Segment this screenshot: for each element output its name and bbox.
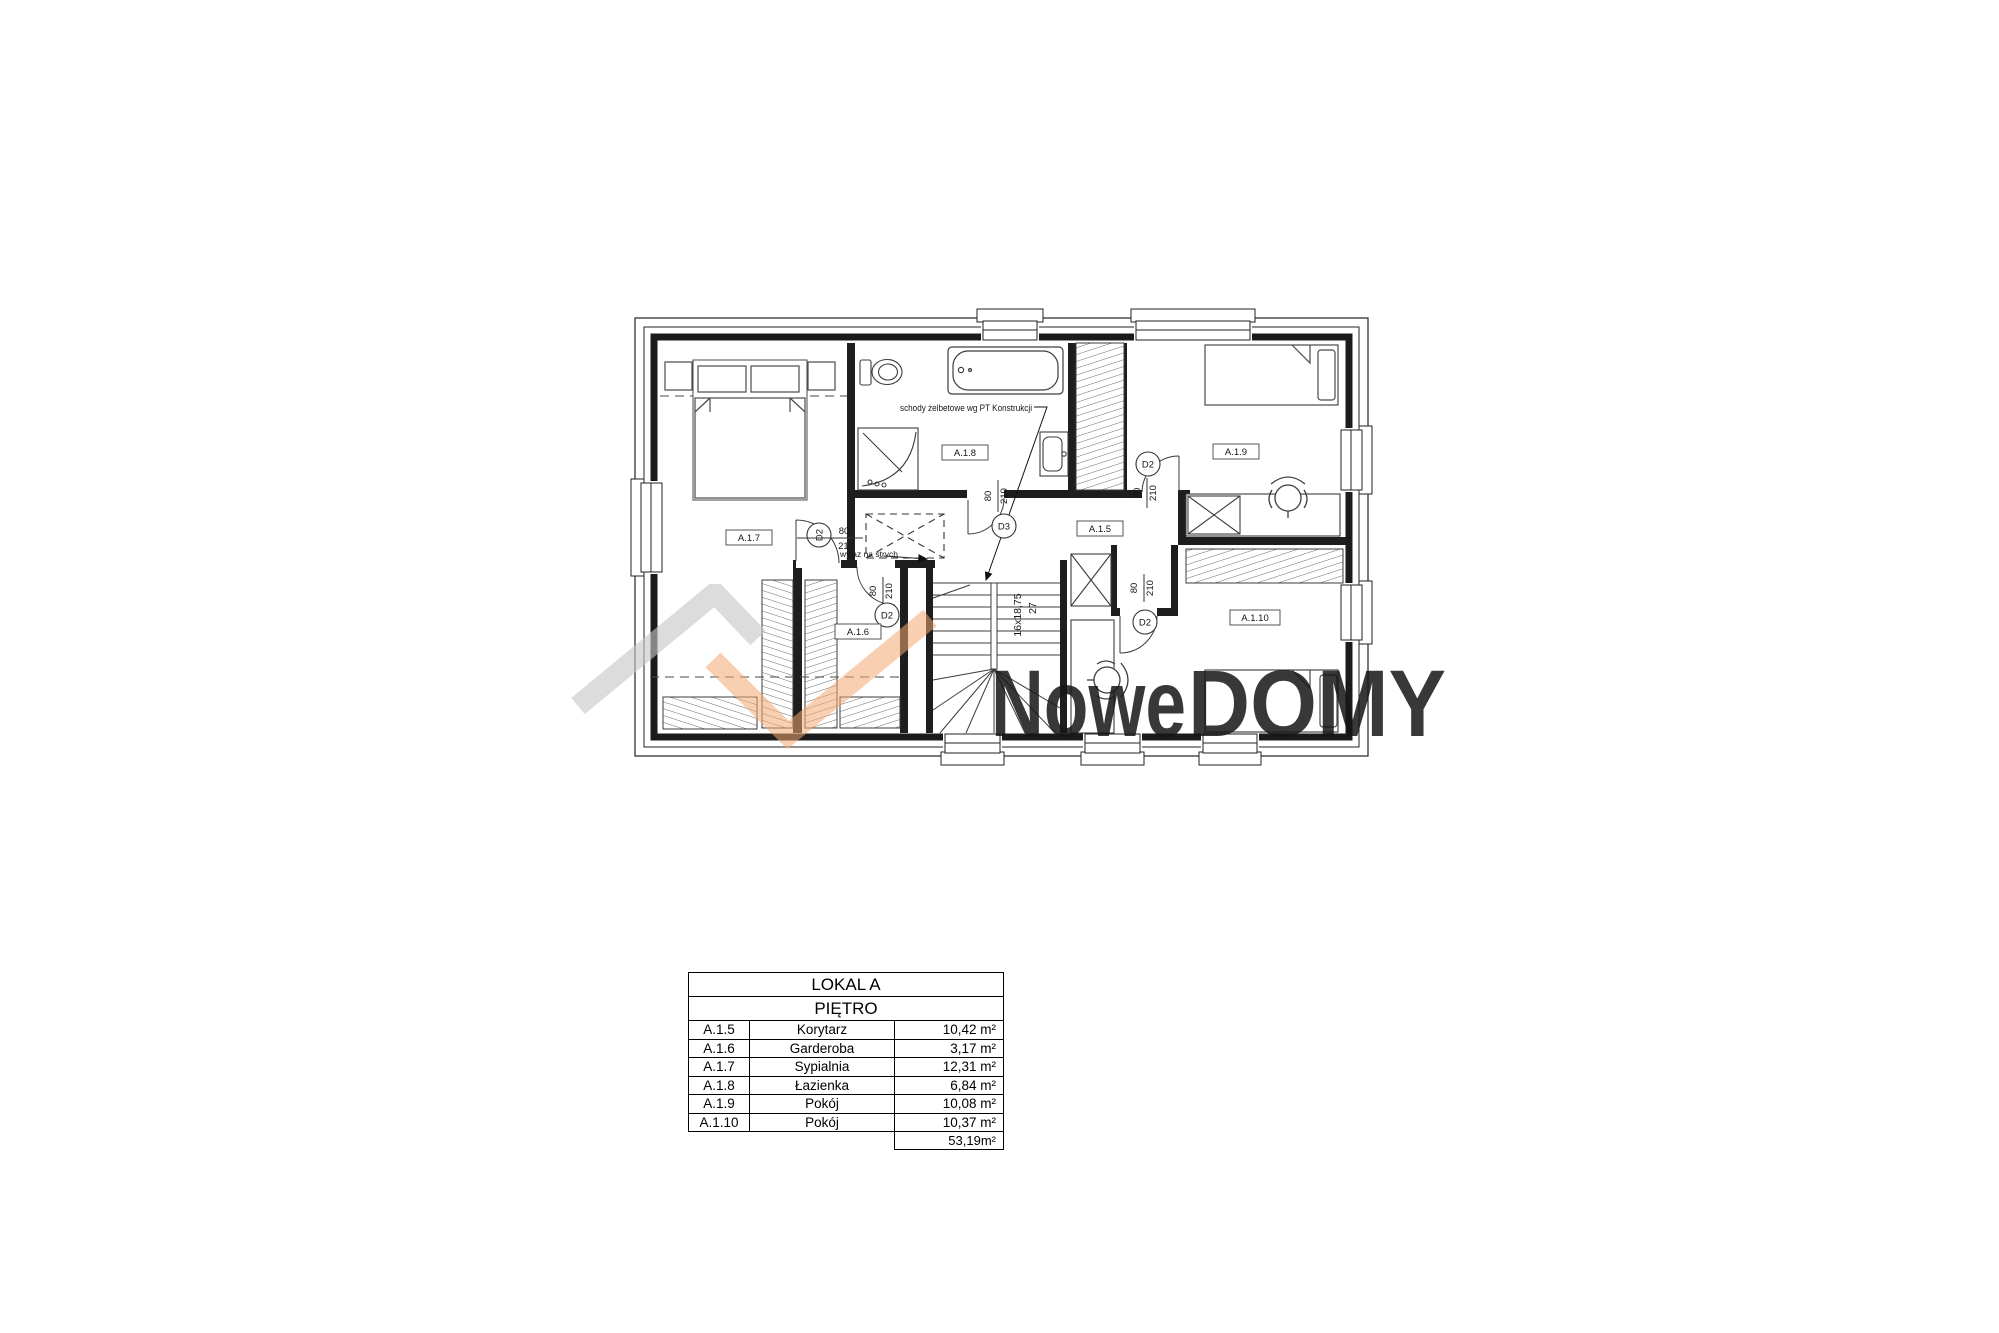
room-area: 6,84 m² xyxy=(895,1076,1004,1095)
door-dim-h: 210 xyxy=(838,541,854,552)
wardrobe-a16-bottom xyxy=(840,697,900,728)
wardrobe-a17-bottom xyxy=(663,697,757,729)
table-row: A.1.6 Garderoba 3,17 m² xyxy=(689,1039,1004,1058)
room-code: A.1.7 xyxy=(689,1058,750,1077)
desk-a19 xyxy=(1186,494,1340,536)
room-label-text: A.1.10 xyxy=(1241,613,1268,624)
window-bottom-3 xyxy=(1199,732,1261,765)
room-label-text: A.1.9 xyxy=(1225,447,1247,458)
table-blank-cell xyxy=(689,1132,750,1150)
door-marker-a110: D2 80 210 xyxy=(1129,574,1157,634)
shower xyxy=(858,428,918,490)
door-label: D2 xyxy=(1139,618,1151,629)
window-right-2 xyxy=(1339,581,1372,644)
room-name: Sypialnia xyxy=(750,1058,895,1077)
wardrobe-a16-vertical xyxy=(805,580,837,728)
door-label: D3 xyxy=(998,522,1010,533)
room-label-a110: A.1.10 xyxy=(1230,610,1280,625)
table-subtitle-row: PIĘTRO xyxy=(689,997,1004,1021)
window-bottom-2 xyxy=(1081,732,1144,765)
door-label: D2 xyxy=(815,529,826,541)
window-bottom-1 xyxy=(941,732,1004,765)
room-label-a18: A.1.8 xyxy=(942,445,988,460)
room-area: 3,17 m² xyxy=(895,1039,1004,1058)
room-areas-table: LOKAL A PIĘTRO A.1.5 Korytarz 10,42 m² A… xyxy=(688,972,1004,1150)
room-code: A.1.6 xyxy=(689,1039,750,1058)
wardrobe-strip-top xyxy=(1076,343,1124,490)
bed-single-a110 xyxy=(1205,670,1338,732)
table-row: A.1.8 Łazienka 6,84 m² xyxy=(689,1076,1004,1095)
table-total-row: 53,19m² xyxy=(689,1132,1004,1150)
bathtub xyxy=(948,347,1063,394)
window-left xyxy=(631,479,664,576)
door-dim-h: 210 xyxy=(1148,485,1159,501)
wardrobe-a110-top xyxy=(1186,549,1343,583)
window-top-2 xyxy=(1131,309,1255,343)
room-code: A.1.10 xyxy=(689,1113,750,1132)
room-label-a19: A.1.9 xyxy=(1213,444,1259,459)
table-title-row: LOKAL A xyxy=(689,973,1004,997)
door-dim-w: 80 xyxy=(868,586,879,597)
floor-plan-drawing: 16x18,75 27 schody żelbetowe wg PT Konst… xyxy=(630,308,1400,768)
door-dim-h: 210 xyxy=(999,488,1010,504)
room-area: 10,42 m² xyxy=(895,1021,1004,1040)
wardrobe-a17-vertical xyxy=(762,580,793,728)
bed-double-a17 xyxy=(665,360,835,500)
door-dim-w: 80 xyxy=(839,526,850,537)
window-top-1 xyxy=(977,309,1043,343)
door-dim-w: 80 xyxy=(1129,583,1140,594)
table-subtitle: PIĘTRO xyxy=(689,997,1004,1021)
room-area: 10,08 m² xyxy=(895,1095,1004,1114)
room-label-text: A.1.7 xyxy=(738,533,760,544)
room-label-text: A.1.8 xyxy=(954,448,976,459)
bathroom-sink xyxy=(1040,432,1068,476)
room-name: Łazienka xyxy=(750,1076,895,1095)
bed-single-a19 xyxy=(1205,345,1338,405)
room-name: Pokój xyxy=(750,1113,895,1132)
table-row: A.1.5 Korytarz 10,42 m² xyxy=(689,1021,1004,1040)
toilet xyxy=(860,360,902,386)
table-row: A.1.7 Sypialnia 12,31 m² xyxy=(689,1058,1004,1077)
table-row: A.1.9 Pokój 10,08 m² xyxy=(689,1095,1004,1114)
room-label-a16: A.1.6 xyxy=(835,624,881,639)
door-marker-a16: D2 80 210 xyxy=(868,577,899,627)
door-marker-a19: D2 80 210 xyxy=(1132,452,1160,508)
room-label-text: A.1.6 xyxy=(847,627,869,638)
page: 16x18,75 27 schody żelbetowe wg PT Konst… xyxy=(0,0,1999,1333)
closet-xbox-corridor xyxy=(1071,554,1111,606)
door-dim-w: 80 xyxy=(983,491,994,502)
room-code: A.1.9 xyxy=(689,1095,750,1114)
room-name: Pokój xyxy=(750,1095,895,1114)
stair-dimension-width: 27 xyxy=(1027,602,1039,614)
room-code: A.1.8 xyxy=(689,1076,750,1095)
stair-dimension-run: 16x18,75 xyxy=(1012,593,1024,636)
door-dim-w: 80 xyxy=(1132,488,1143,499)
room-label-a15: A.1.5 xyxy=(1077,521,1123,536)
table-blank-cell xyxy=(750,1132,895,1150)
staircase xyxy=(933,583,1060,733)
room-label-text: A.1.5 xyxy=(1089,524,1111,535)
room-label-a17: A.1.7 xyxy=(726,530,772,545)
door-label: D2 xyxy=(1142,460,1154,471)
room-name: Garderoba xyxy=(750,1039,895,1058)
window-right-1 xyxy=(1339,426,1372,494)
door-label: D2 xyxy=(881,611,893,622)
room-area: 12,31 m² xyxy=(895,1058,1004,1077)
door-dim-h: 210 xyxy=(884,583,895,599)
total-area: 53,19m² xyxy=(895,1132,1004,1150)
table-title: LOKAL A xyxy=(689,973,1004,997)
table-row: A.1.10 Pokój 10,37 m² xyxy=(689,1113,1004,1132)
room-area: 10,37 m² xyxy=(895,1113,1004,1132)
door-dim-h: 210 xyxy=(1145,580,1156,596)
room-code: A.1.5 xyxy=(689,1021,750,1040)
stairs-note: schody żelbetowe wg PT Konstrukcji xyxy=(900,403,1032,413)
room-name: Korytarz xyxy=(750,1021,895,1040)
